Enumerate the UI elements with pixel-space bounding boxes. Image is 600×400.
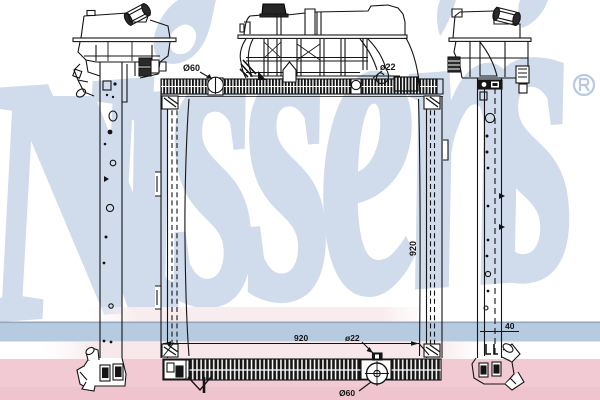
svg-text:920: 920 <box>408 241 418 256</box>
svg-text:ø22: ø22 <box>380 62 396 72</box>
svg-text:ø22: ø22 <box>345 333 360 343</box>
svg-text:Ø60: Ø60 <box>339 388 355 398</box>
svg-text:920: 920 <box>294 333 308 343</box>
svg-text:Ø60: Ø60 <box>183 63 200 73</box>
svg-text:40: 40 <box>505 321 515 331</box>
